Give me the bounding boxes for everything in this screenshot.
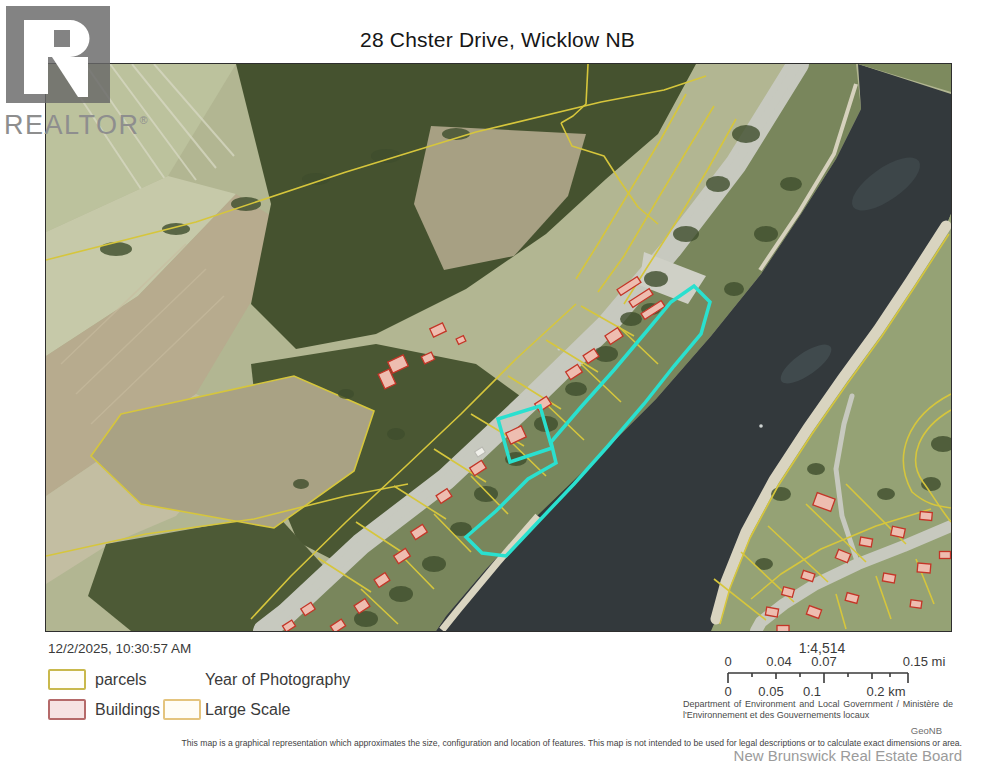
scale-km-1: 0.05 (758, 684, 783, 699)
realtor-logo: REALTOR® (4, 6, 154, 150)
scale-bar (720, 671, 920, 685)
scale-mi-2: 0.07 (811, 654, 836, 669)
legend-swatch-buildings (48, 699, 86, 720)
legend-label-large-scale: Large Scale (205, 701, 290, 719)
geonb-credit: GeoNB (911, 725, 942, 736)
legend-label-parcels: parcels (95, 671, 147, 689)
aerial-map-image (46, 64, 951, 631)
legend-label-year-of-photography: Year of Photography (205, 671, 350, 689)
legend-label-buildings: Buildings (95, 701, 160, 719)
map-timestamp: 12/2/2025, 10:30:57 AM (48, 641, 191, 656)
realtor-logo-text: REALTOR® (4, 110, 154, 141)
scale-km-3: 0.2 km (866, 684, 905, 699)
scale-km-0: 0 (724, 684, 731, 699)
real-estate-board-credit: New Brunswick Real Estate Board (734, 747, 962, 764)
scale-mi-1: 0.04 (766, 654, 791, 669)
aerial-map (45, 63, 952, 632)
scale-mi-3: 0.15 mi (903, 654, 946, 669)
attribution-text: Department of Environment and Local Gove… (683, 699, 953, 721)
map-report-page: 28 Chster Drive, Wicklow NB (0, 0, 995, 768)
scale-km-2: 0.1 (803, 684, 821, 699)
scale-mi-0: 0 (724, 654, 731, 669)
legend-swatch-large-scale (163, 699, 201, 720)
legend-swatch-parcels (48, 669, 86, 690)
